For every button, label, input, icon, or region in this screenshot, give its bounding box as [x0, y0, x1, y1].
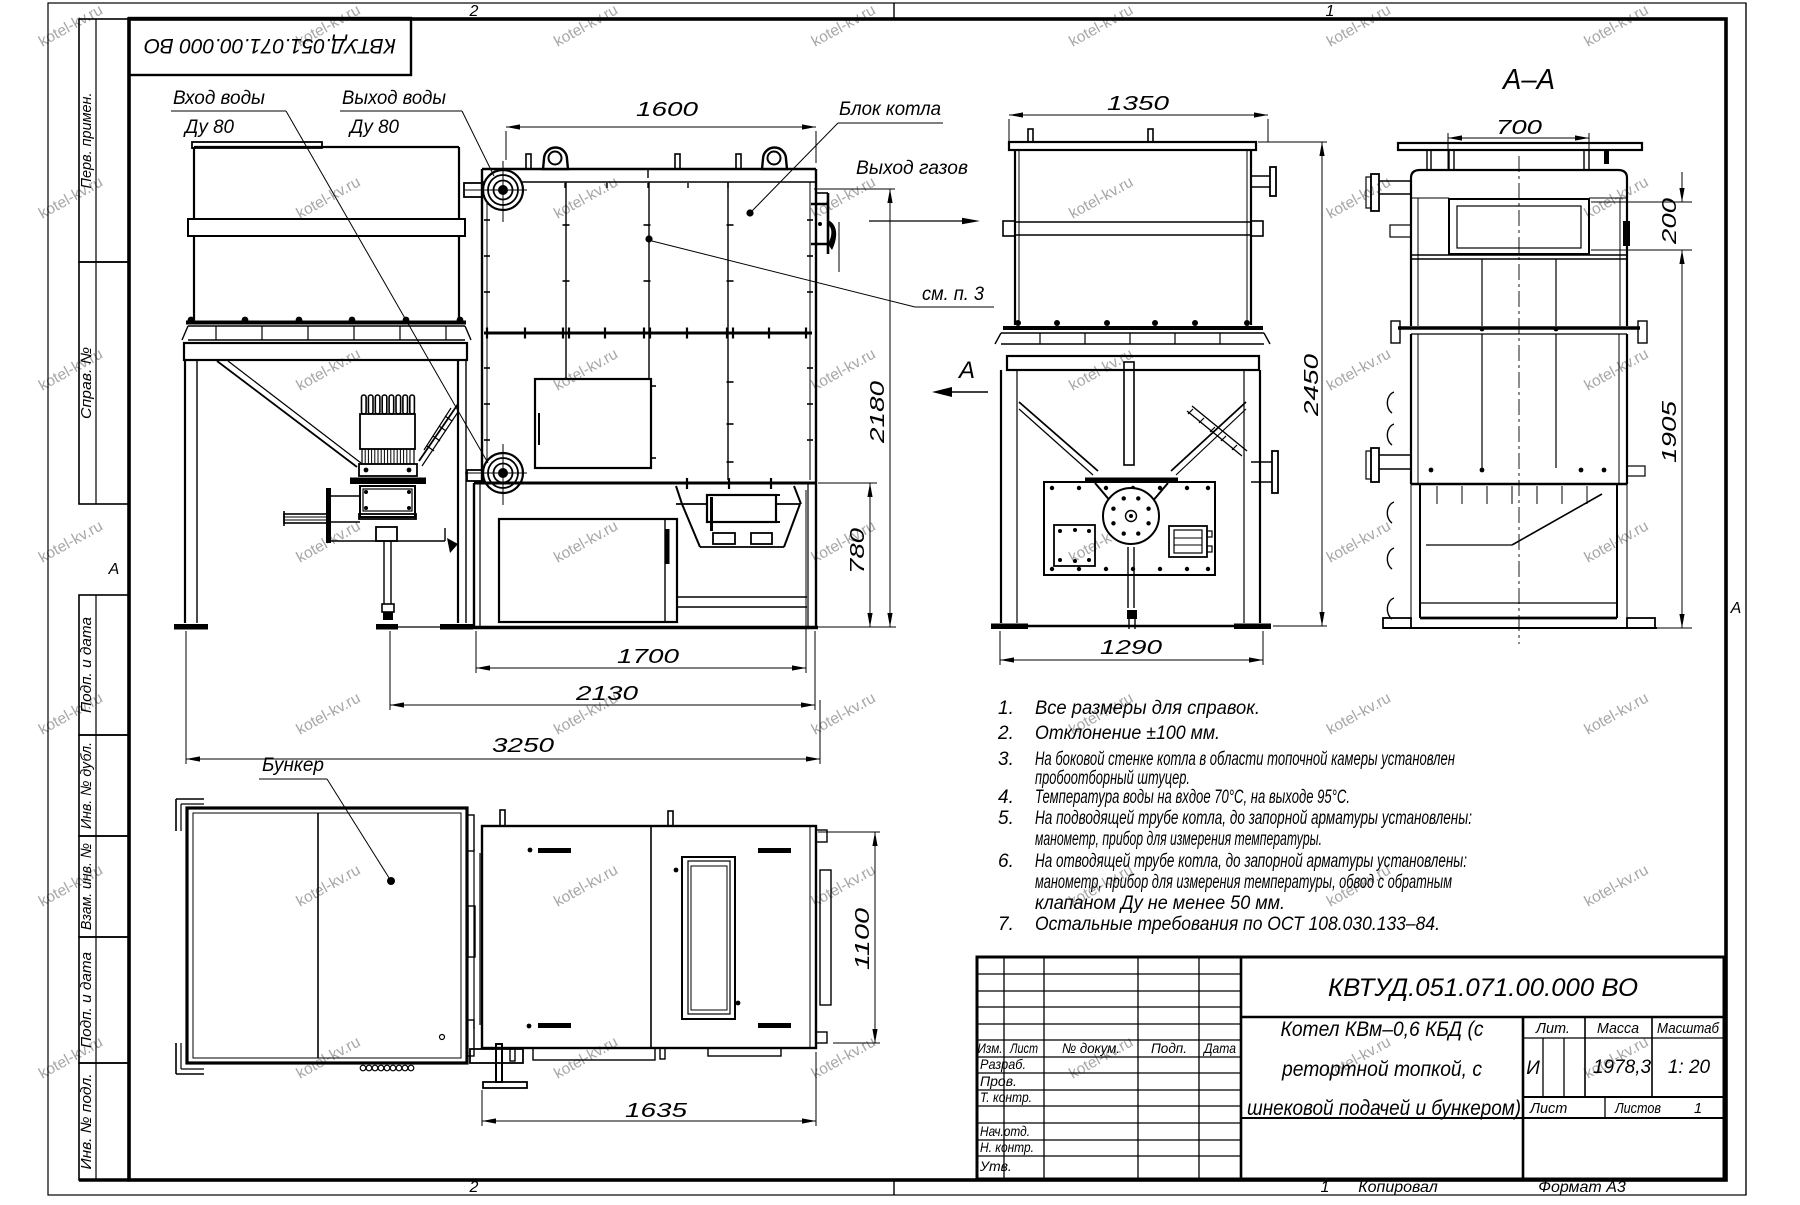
svg-text:Бункер: Бункер: [262, 755, 324, 776]
svg-text:На подводящей трубе котла, до: На подводящей трубе котла, до запорной а…: [1035, 808, 1472, 829]
svg-text:Лист: Лист: [1009, 1040, 1038, 1056]
svg-text:ретортной топкой, с: ретортной топкой, с: [1281, 1058, 1482, 1081]
svg-text:1: 20: 1: 20: [1668, 1057, 1711, 1078]
svg-text:Разраб.: Разраб.: [980, 1056, 1026, 1072]
svg-text:2130: 2130: [575, 682, 639, 705]
svg-text:И: И: [1526, 1058, 1540, 1079]
svg-text:2180: 2180: [866, 380, 889, 444]
svg-text:Котел КВм–0,6 КБД (с: Котел КВм–0,6 КБД (с: [1281, 1018, 1484, 1041]
svg-text:Взам. инв. №: Взам. инв. №: [78, 843, 95, 930]
svg-text:Подп.: Подп.: [1151, 1040, 1187, 1056]
svg-text:Изм.: Изм.: [978, 1040, 1003, 1056]
svg-text:Подп. и дата: Подп. и дата: [78, 617, 95, 713]
svg-text:2450: 2450: [1300, 353, 1323, 417]
svg-text:Масштаб: Масштаб: [1657, 1021, 1720, 1037]
svg-text:Утв.: Утв.: [979, 1158, 1012, 1174]
svg-text:манометр, прибор для измерения: манометр, прибор для измерения температу…: [1035, 872, 1452, 893]
svg-text:1: 1: [1694, 1101, 1702, 1117]
svg-text:манометр, прибор для измерения: манометр, прибор для измерения температу…: [1035, 829, 1322, 850]
svg-text:1100: 1100: [851, 907, 874, 970]
svg-text:1978,3: 1978,3: [1593, 1057, 1652, 1078]
svg-text:7.: 7.: [998, 914, 1014, 935]
svg-text:1290: 1290: [1100, 636, 1163, 659]
svg-text:Формат А3: Формат А3: [1538, 1179, 1626, 1196]
svg-text:3250: 3250: [492, 734, 555, 757]
svg-text:Т. контр.: Т. контр.: [980, 1089, 1032, 1105]
svg-text:Н. контр.: Н. контр.: [980, 1139, 1034, 1155]
svg-text:А: А: [1730, 600, 1742, 617]
svg-text:Вход воды: Вход воды: [173, 88, 265, 109]
svg-text:Масса: Масса: [1597, 1021, 1639, 1037]
svg-text:Перв. примен.: Перв. примен.: [78, 93, 95, 189]
svg-text:На боковой стенке котла в обла: На боковой стенке котла в области топочн…: [1035, 749, 1455, 770]
svg-text:3.: 3.: [998, 749, 1014, 770]
svg-text:2.: 2.: [997, 723, 1014, 744]
svg-text:2: 2: [469, 3, 479, 20]
svg-text:№ докум.: № докум.: [1062, 1040, 1120, 1056]
svg-text:пробоотборный штуцер.: пробоотборный штуцер.: [1035, 768, 1190, 789]
svg-text:6.: 6.: [998, 851, 1014, 872]
svg-text:А–А: А–А: [1501, 64, 1555, 96]
svg-text:Отклонение ±100 мм.: Отклонение ±100 мм.: [1035, 723, 1220, 744]
svg-text:1: 1: [1326, 3, 1335, 20]
svg-text:1635: 1635: [625, 1099, 688, 1122]
svg-text:На отводящей трубе котла, до з: На отводящей трубе котла, до запорной ар…: [1035, 851, 1467, 872]
svg-text:Пров.: Пров.: [980, 1073, 1017, 1089]
svg-text:Лит.: Лит.: [1535, 1021, 1570, 1037]
svg-text:780: 780: [846, 527, 869, 574]
svg-text:1: 1: [1321, 1179, 1330, 1196]
svg-text:1350: 1350: [1107, 92, 1170, 115]
svg-text:Инв. № подл.: Инв. № подл.: [78, 1074, 95, 1170]
svg-text:Все размеры для справок.: Все размеры для справок.: [1035, 698, 1260, 719]
svg-text:см. п. 3: см. п. 3: [922, 284, 984, 305]
svg-text:Выход газов: Выход газов: [856, 158, 968, 179]
svg-text:Ду 80: Ду 80: [183, 117, 234, 138]
svg-text:Блок котла: Блок котла: [839, 99, 941, 120]
svg-text:Остальные требования по ОСТ 10: Остальные требования по ОСТ 108.030.133–…: [1035, 914, 1440, 935]
svg-text:1905: 1905: [1658, 400, 1681, 463]
svg-text:А: А: [957, 357, 975, 384]
svg-text:1700: 1700: [617, 645, 680, 668]
svg-text:1.: 1.: [998, 698, 1014, 719]
svg-text:Инв. № дубл.: Инв. № дубл.: [78, 742, 95, 829]
svg-text:А: А: [108, 561, 120, 578]
svg-text:КВТУД.051.071.00.000 ВО: КВТУД.051.071.00.000 ВО: [144, 34, 396, 57]
svg-text:Ду 80: Ду 80: [348, 117, 399, 138]
svg-text:КВТУД.051.071.00.000 ВО: КВТУД.051.071.00.000 ВО: [1328, 974, 1638, 1002]
svg-text:Листов: Листов: [1614, 1101, 1661, 1117]
svg-text:Температура воды на вхдое 70°С: Температура воды на вхдое 70°С, на выход…: [1035, 787, 1350, 808]
svg-text:200: 200: [1658, 197, 1681, 245]
svg-text:5.: 5.: [998, 808, 1014, 829]
svg-text:клапаном Ду не менее 50 мм.: клапаном Ду не менее 50 мм.: [1035, 893, 1285, 914]
svg-text:700: 700: [1496, 116, 1543, 139]
svg-text:2: 2: [469, 1179, 479, 1196]
svg-text:Подп. и дата: Подп. и дата: [78, 952, 95, 1048]
svg-text:4.: 4.: [998, 787, 1014, 808]
svg-text:Копировал: Копировал: [1358, 1179, 1438, 1196]
svg-text:Нач.отд.: Нач.отд.: [980, 1123, 1030, 1139]
svg-text:Дата: Дата: [1202, 1040, 1236, 1056]
svg-text:Выход воды: Выход воды: [342, 88, 446, 109]
svg-text:1600: 1600: [636, 98, 699, 121]
svg-text:шнековой подачей и бункером): шнековой подачей и бункером): [1247, 1097, 1521, 1120]
svg-text:Лист: Лист: [1529, 1101, 1567, 1117]
svg-text:Справ. №: Справ. №: [78, 347, 95, 419]
